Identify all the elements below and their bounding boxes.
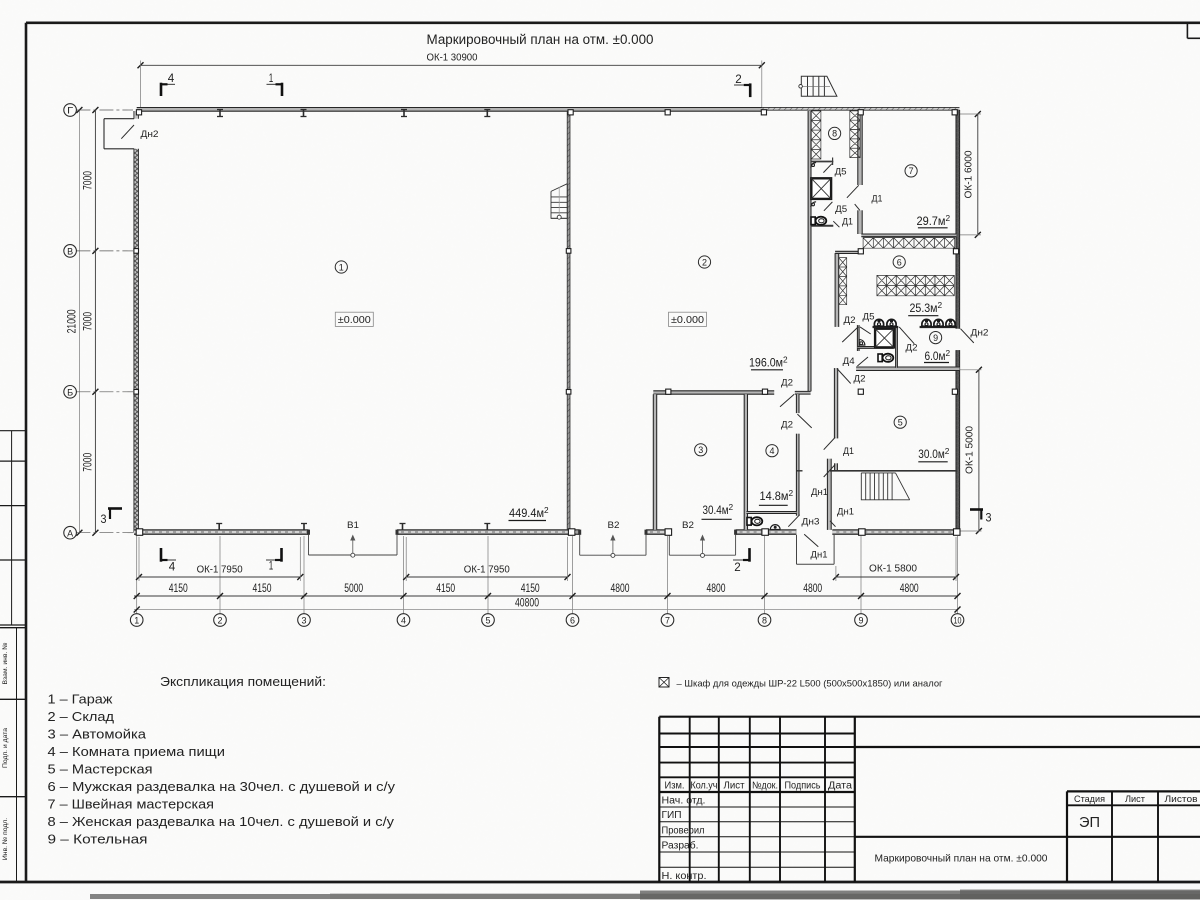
svg-text:Д1: Д1 [842,217,853,227]
svg-text:Кол.уч: Кол.уч [691,781,718,792]
svg-text:В: В [67,247,73,258]
svg-text:2 – Склад: 2 – Склад [48,710,115,724]
svg-text:Экспликация помещений:: Экспликация помещений: [160,674,326,689]
svg-text:7000: 7000 [81,312,95,331]
svg-text:5: 5 [898,418,903,428]
svg-text:Д2: Д2 [781,378,793,388]
svg-text:Дн3: Дн3 [802,517,820,527]
svg-text:5000: 5000 [344,581,363,595]
svg-text:Нач. отд.: Нач. отд. [662,796,706,807]
svg-text:2: 2 [783,355,788,365]
svg-text:3: 3 [302,616,307,627]
svg-text:7000: 7000 [81,453,95,472]
svg-text:4800: 4800 [707,581,726,595]
svg-text:30.4м: 30.4м [703,505,729,517]
svg-text:ОК-1 5800: ОК-1 5800 [869,564,917,575]
svg-text:Дн1: Дн1 [811,487,828,497]
svg-text:14.8м: 14.8м [760,491,789,503]
svg-text:ЭП: ЭП [1079,814,1100,831]
svg-text:В1: В1 [347,520,359,530]
svg-text:– Шкаф для одежды ШР-22 L500 (: – Шкаф для одежды ШР-22 L500 (500х500х18… [677,679,944,690]
svg-text:Проверил: Проверил [662,825,705,836]
svg-text:7: 7 [665,616,670,627]
svg-text:4150: 4150 [169,581,188,595]
svg-text:3 – Автомойка: 3 – Автомойка [48,728,147,742]
svg-text:Дата: Дата [828,781,852,792]
svg-text:Маркировочный план на отм. ±0.: Маркировочный план на отм. ±0.000 [427,32,654,47]
svg-text:Разраб.: Разраб. [662,840,699,852]
svg-text:Подп. и дата: Подп. и дата [2,728,9,768]
svg-text:В2: В2 [608,520,620,530]
svg-text:1: 1 [134,616,139,627]
svg-text:6: 6 [570,616,575,627]
svg-text:1: 1 [269,559,274,573]
svg-text:ГИП: ГИП [662,810,682,821]
svg-text:Б: Б [67,387,73,398]
svg-text:Д2: Д2 [906,343,918,353]
svg-text:7 – Швейная мастерская: 7 – Швейная мастерская [48,798,215,812]
svg-text:4800: 4800 [900,581,919,595]
svg-text:Дн2: Дн2 [971,328,989,338]
svg-text:±0.000: ±0.000 [338,314,371,326]
svg-text:Лист: Лист [724,781,745,792]
svg-text:Д1: Д1 [843,446,854,456]
svg-text:4 – Комната приема пищи: 4 – Комната приема пищи [48,745,226,759]
svg-text:3: 3 [698,445,703,455]
svg-text:Д5: Д5 [835,204,847,214]
svg-text:9: 9 [859,616,864,627]
svg-text:ОК-1 7950: ОК-1 7950 [464,565,510,576]
svg-text:9: 9 [933,333,938,343]
svg-text:4: 4 [168,71,175,85]
svg-text:Дн2: Дн2 [141,129,159,139]
svg-text:21000: 21000 [65,309,79,333]
svg-text:Н. контр.: Н. контр. [662,871,707,882]
svg-text:4: 4 [770,446,775,456]
svg-text:4: 4 [169,560,176,574]
svg-text:Дн1: Дн1 [811,550,828,560]
svg-text:1: 1 [339,262,344,272]
svg-text:Листов: Листов [1165,794,1198,805]
svg-text:В2: В2 [682,520,694,530]
svg-text:2: 2 [946,348,951,358]
svg-text:1: 1 [269,71,274,85]
svg-text:Д4: Д4 [843,356,855,366]
svg-text:8: 8 [762,616,767,627]
svg-text:Д2: Д2 [844,315,856,325]
svg-text:5: 5 [486,616,491,627]
svg-text:6: 6 [897,257,902,267]
svg-text:29.7м: 29.7м [917,216,946,228]
svg-text:6 – Мужская раздевалка на 30че: 6 – Мужская раздевалка на 30чел. с душев… [48,780,396,794]
svg-text:2: 2 [789,488,794,498]
svg-text:8 – Женская раздевалка на 10че: 8 – Женская раздевалка на 10чел. с душев… [48,815,395,829]
svg-text:2: 2 [218,616,223,627]
svg-text:449.4м: 449.4м [509,508,544,520]
svg-text:9 – Котельная: 9 – Котельная [48,833,148,847]
svg-text:2: 2 [946,213,951,223]
svg-text:7: 7 [909,166,914,176]
svg-text:Д2: Д2 [781,420,793,430]
svg-text:Изм.: Изм. [665,781,685,792]
svg-text:2: 2 [544,505,549,515]
svg-text:Г: Г [67,106,73,117]
svg-text:4: 4 [401,616,406,627]
svg-text:Подпись: Подпись [785,781,821,792]
svg-text:А: А [67,528,74,539]
svg-text:3: 3 [101,512,107,526]
svg-text:Д5: Д5 [863,312,875,322]
svg-text:ОК-1 30900: ОК-1 30900 [427,53,478,64]
svg-text:2: 2 [729,502,734,512]
svg-text:Взам. инв. №: Взам. инв. № [2,642,9,684]
svg-text:2: 2 [945,446,950,456]
svg-text:Инв. № подл.: Инв. № подл. [2,818,9,860]
svg-text:Лист: Лист [1125,794,1146,805]
svg-text:ОК-1 6000: ОК-1 6000 [964,150,975,198]
svg-text:6.0м: 6.0м [925,351,946,363]
svg-text:№док.: №док. [752,781,778,792]
svg-text:ОК-1 5000: ОК-1 5000 [965,426,976,474]
svg-text:Д5: Д5 [835,167,847,177]
svg-text:4150: 4150 [521,581,540,595]
svg-text:25.3м: 25.3м [910,303,938,315]
svg-text:4800: 4800 [611,581,630,595]
svg-text:4150: 4150 [436,581,455,595]
svg-text:10: 10 [954,616,962,627]
svg-text:3: 3 [986,511,992,525]
svg-text:30.0м: 30.0м [918,449,945,461]
svg-text:Маркировочный план на отм. ±0.: Маркировочный план на отм. ±0.000 [875,853,1048,865]
svg-text:ОК-1 7950: ОК-1 7950 [197,565,243,576]
svg-text:Стадия: Стадия [1074,794,1105,805]
svg-text:2: 2 [938,300,943,310]
svg-text:8: 8 [832,129,837,139]
svg-text:196.0м: 196.0м [749,358,783,370]
svg-text:1 – Гараж: 1 – Гараж [48,693,114,707]
svg-text:4150: 4150 [253,581,272,595]
svg-text:40800: 40800 [515,596,539,610]
svg-text:Дн1: Дн1 [837,507,854,517]
svg-text:Д2: Д2 [854,374,866,384]
svg-text:2: 2 [702,257,707,267]
svg-text:±0.000: ±0.000 [671,314,704,326]
svg-text:7000: 7000 [81,171,95,190]
svg-text:4800: 4800 [803,581,822,595]
svg-text:5 – Мастерская: 5 – Мастерская [48,763,153,777]
svg-text:2: 2 [735,72,742,86]
svg-text:2: 2 [734,560,741,574]
svg-text:Д1: Д1 [872,194,883,204]
